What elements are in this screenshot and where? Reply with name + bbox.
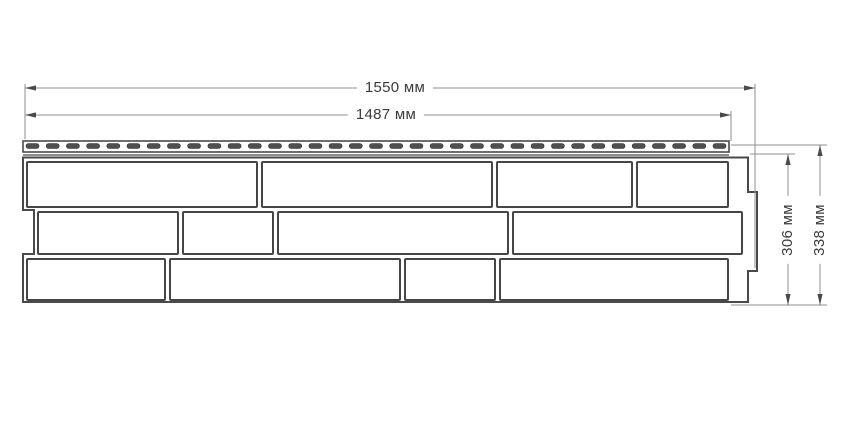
nail-slot — [551, 144, 564, 149]
nail-slot — [188, 144, 201, 149]
nail-slot — [66, 144, 79, 149]
brick — [497, 162, 632, 207]
brick — [38, 212, 178, 254]
brick — [27, 259, 165, 300]
nail-slot — [26, 144, 39, 149]
dim-label-width-nail: 1487 мм — [348, 106, 424, 124]
arrow-top-height-total — [817, 145, 822, 156]
nail-slot — [228, 144, 241, 149]
panel-drawing — [0, 0, 850, 425]
nail-slot — [652, 144, 665, 149]
arrow-right-width-nail — [720, 112, 731, 117]
nail-slot — [471, 144, 484, 149]
nail-slot — [693, 144, 706, 149]
nail-slot — [127, 144, 140, 149]
nail-slot — [349, 144, 362, 149]
nail-slot — [430, 144, 443, 149]
nail-slot — [46, 144, 59, 149]
brick — [170, 259, 400, 300]
arrow-left-width-nail — [25, 112, 36, 117]
diagram-canvas: 1550 мм 1487 мм 306 мм 338 мм — [0, 0, 850, 425]
nail-slot — [309, 144, 322, 149]
nail-slot — [147, 144, 160, 149]
nail-slot — [390, 144, 403, 149]
nail-slot — [370, 144, 383, 149]
brick — [278, 212, 508, 254]
nail-slot — [632, 144, 645, 149]
nail-slot — [572, 144, 585, 149]
nail-slot — [248, 144, 261, 149]
brick — [183, 212, 273, 254]
nail-slot — [329, 144, 342, 149]
brick — [262, 162, 492, 207]
brick — [513, 212, 742, 254]
nail-slot — [410, 144, 423, 149]
nail-slot — [713, 144, 726, 149]
arrow-top-height-body — [785, 154, 790, 165]
nail-slot — [167, 144, 180, 149]
nail-slots — [26, 144, 726, 149]
nail-slot — [612, 144, 625, 149]
arrow-right-width-total — [744, 85, 755, 90]
arrow-bottom-height-body — [785, 294, 790, 305]
dim-label-height-total: 338 мм — [811, 196, 829, 264]
nail-slot — [491, 144, 504, 149]
brick — [500, 259, 728, 300]
nail-slot — [107, 144, 120, 149]
brick — [637, 162, 728, 207]
nail-slot — [87, 144, 100, 149]
dim-label-width-total: 1550 мм — [357, 79, 433, 97]
brick — [405, 259, 495, 300]
dim-label-height-body: 306 мм — [779, 196, 797, 264]
nail-slot — [269, 144, 282, 149]
brick — [27, 162, 257, 207]
nail-slot — [450, 144, 463, 149]
nail-slot — [592, 144, 605, 149]
nail-slot — [531, 144, 544, 149]
arrow-left-width-total — [25, 85, 36, 90]
arrow-bottom-height-total — [817, 294, 822, 305]
nail-slot — [208, 144, 221, 149]
nail-slot — [289, 144, 302, 149]
nail-slot — [511, 144, 524, 149]
nail-slot — [673, 144, 686, 149]
